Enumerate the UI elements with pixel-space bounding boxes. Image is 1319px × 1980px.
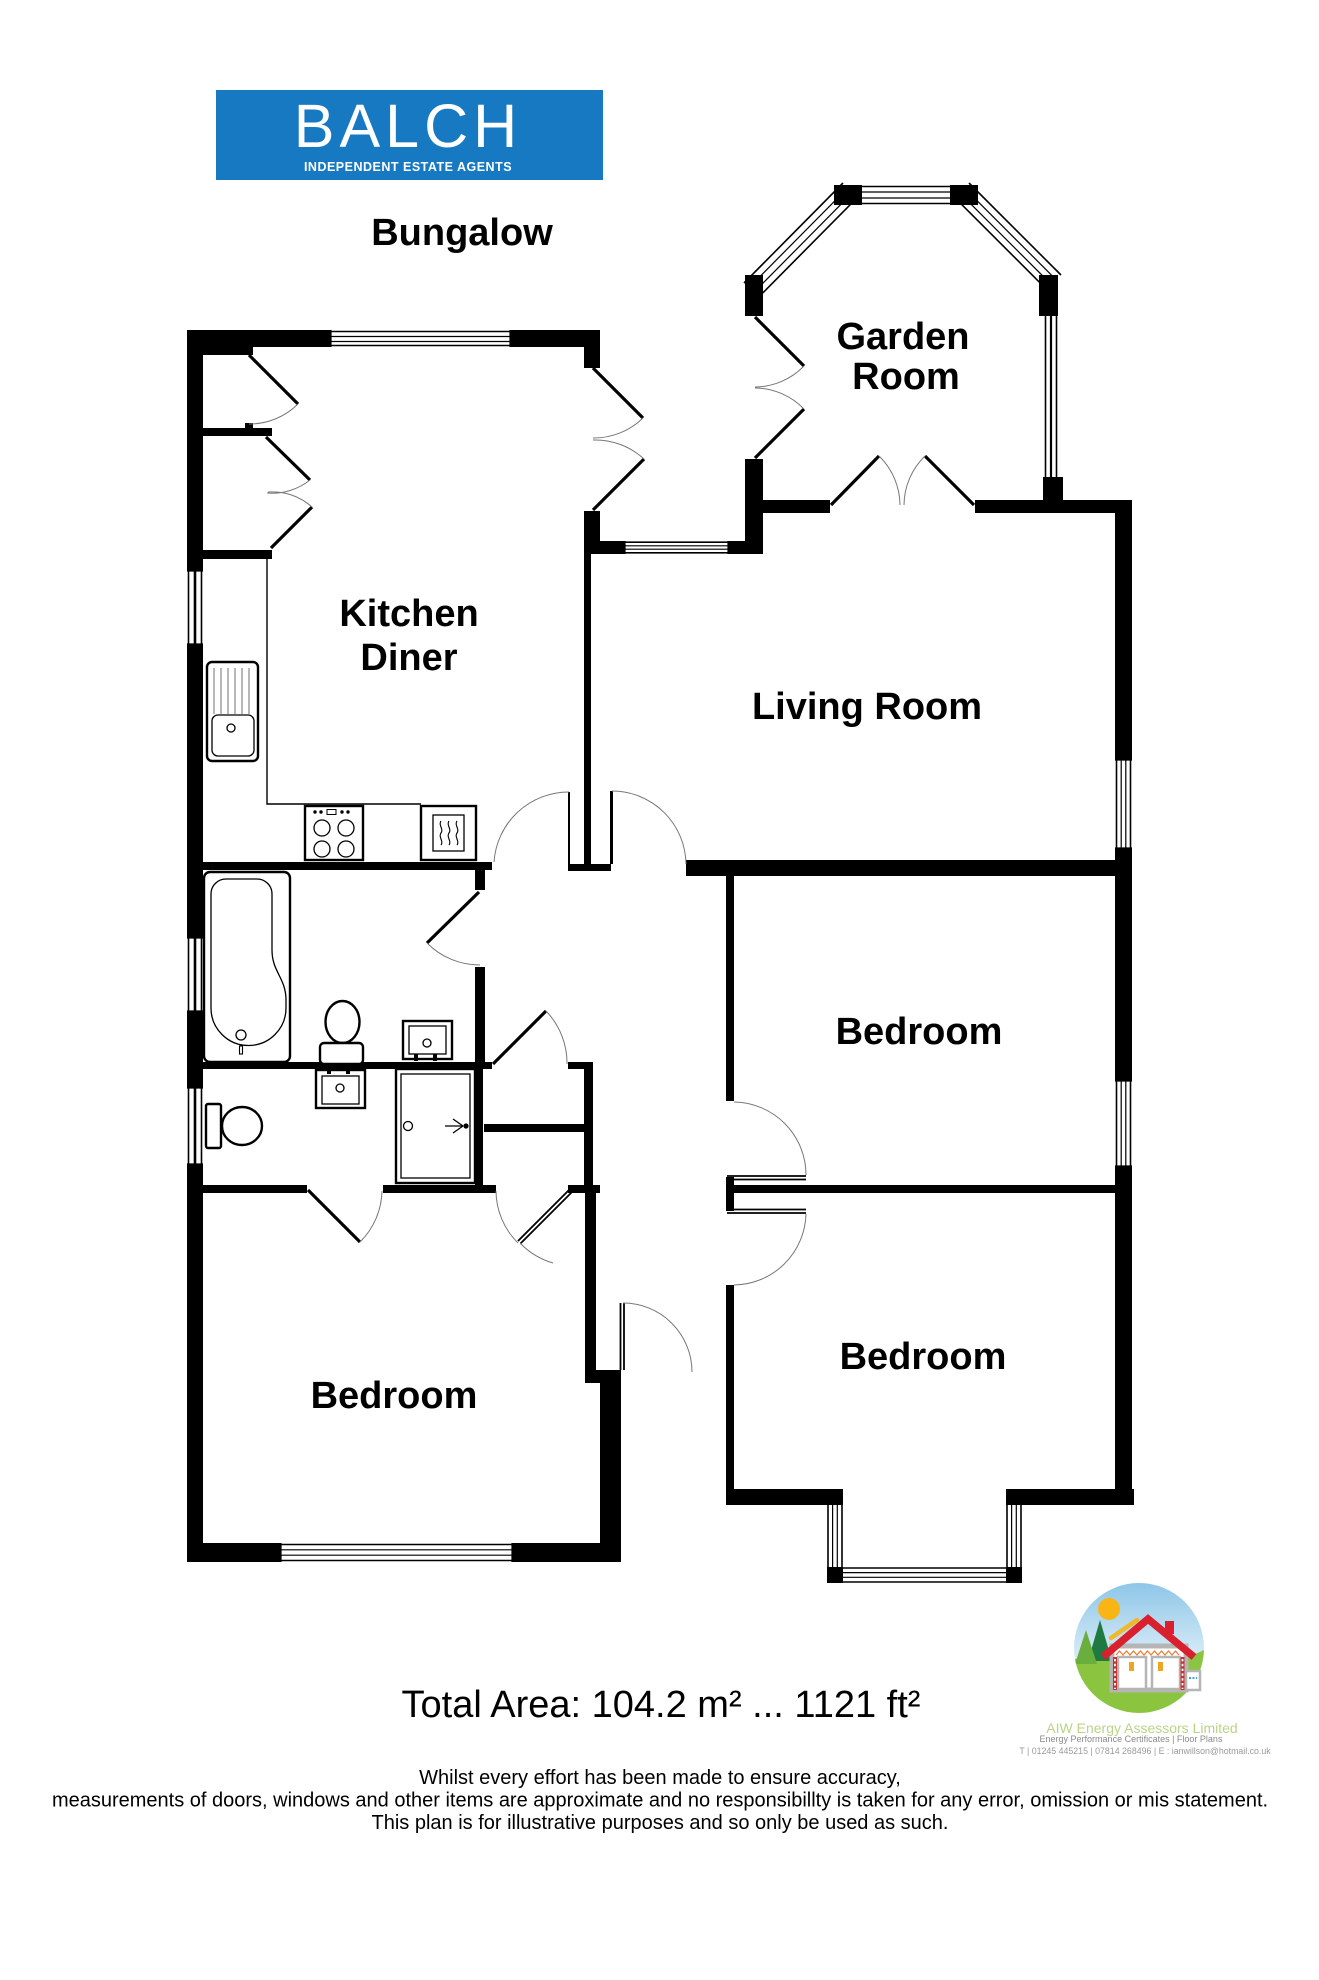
- svg-text:Whilst every effort has been m: Whilst every effort has been made to ens…: [419, 1767, 901, 1789]
- svg-text:Diner: Diner: [360, 637, 457, 679]
- svg-text:Bedroom: Bedroom: [311, 1375, 478, 1417]
- svg-text:Bedroom: Bedroom: [840, 1336, 1007, 1378]
- svg-text:Bedroom: Bedroom: [836, 1011, 1003, 1053]
- svg-text:Total Area: 104.2 m² ... 1121: Total Area: 104.2 m² ... 1121 ft²: [402, 1684, 921, 1726]
- svg-text:Room: Room: [852, 356, 960, 398]
- svg-text:Kitchen: Kitchen: [339, 593, 478, 635]
- svg-text:T | 01245 445215 | 07814 26849: T | 01245 445215 | 07814 268496 | E : ia…: [1019, 1746, 1271, 1756]
- svg-text:Living Room: Living Room: [752, 686, 982, 728]
- svg-text:measurements of doors, windows: measurements of doors, windows and other…: [52, 1790, 1268, 1812]
- svg-text:Energy Performance Certificate: Energy Performance Certificates | Floor …: [1040, 1734, 1223, 1744]
- svg-text:This plan is for illustrative: This plan is for illustrative purposes a…: [372, 1812, 949, 1834]
- svg-text:INDEPENDENT ESTATE AGENTS: INDEPENDENT ESTATE AGENTS: [304, 160, 512, 174]
- svg-text:Garden: Garden: [836, 316, 969, 358]
- svg-text:BALCH: BALCH: [294, 92, 522, 160]
- svg-text:Bungalow: Bungalow: [371, 212, 553, 254]
